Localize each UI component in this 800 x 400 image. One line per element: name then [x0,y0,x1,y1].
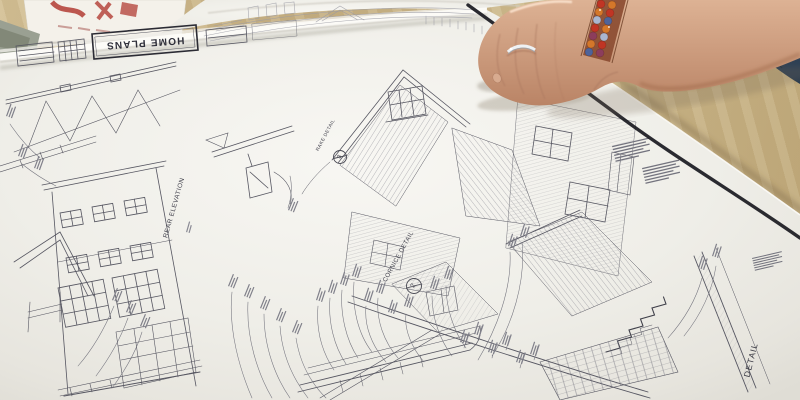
scene-art [0,0,800,400]
photo-blueprints-scene: HOME PLANS REAR ELEVATION RAKE DETAIL 3 … [0,0,800,400]
arm-and-hand [476,0,800,128]
